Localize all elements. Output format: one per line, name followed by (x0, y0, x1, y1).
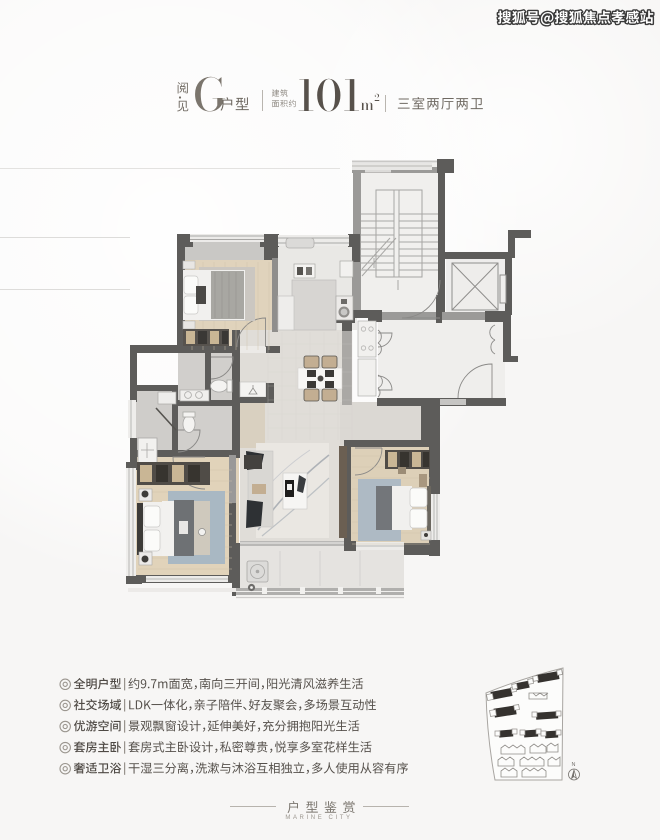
svg-text:N: N (572, 762, 576, 768)
